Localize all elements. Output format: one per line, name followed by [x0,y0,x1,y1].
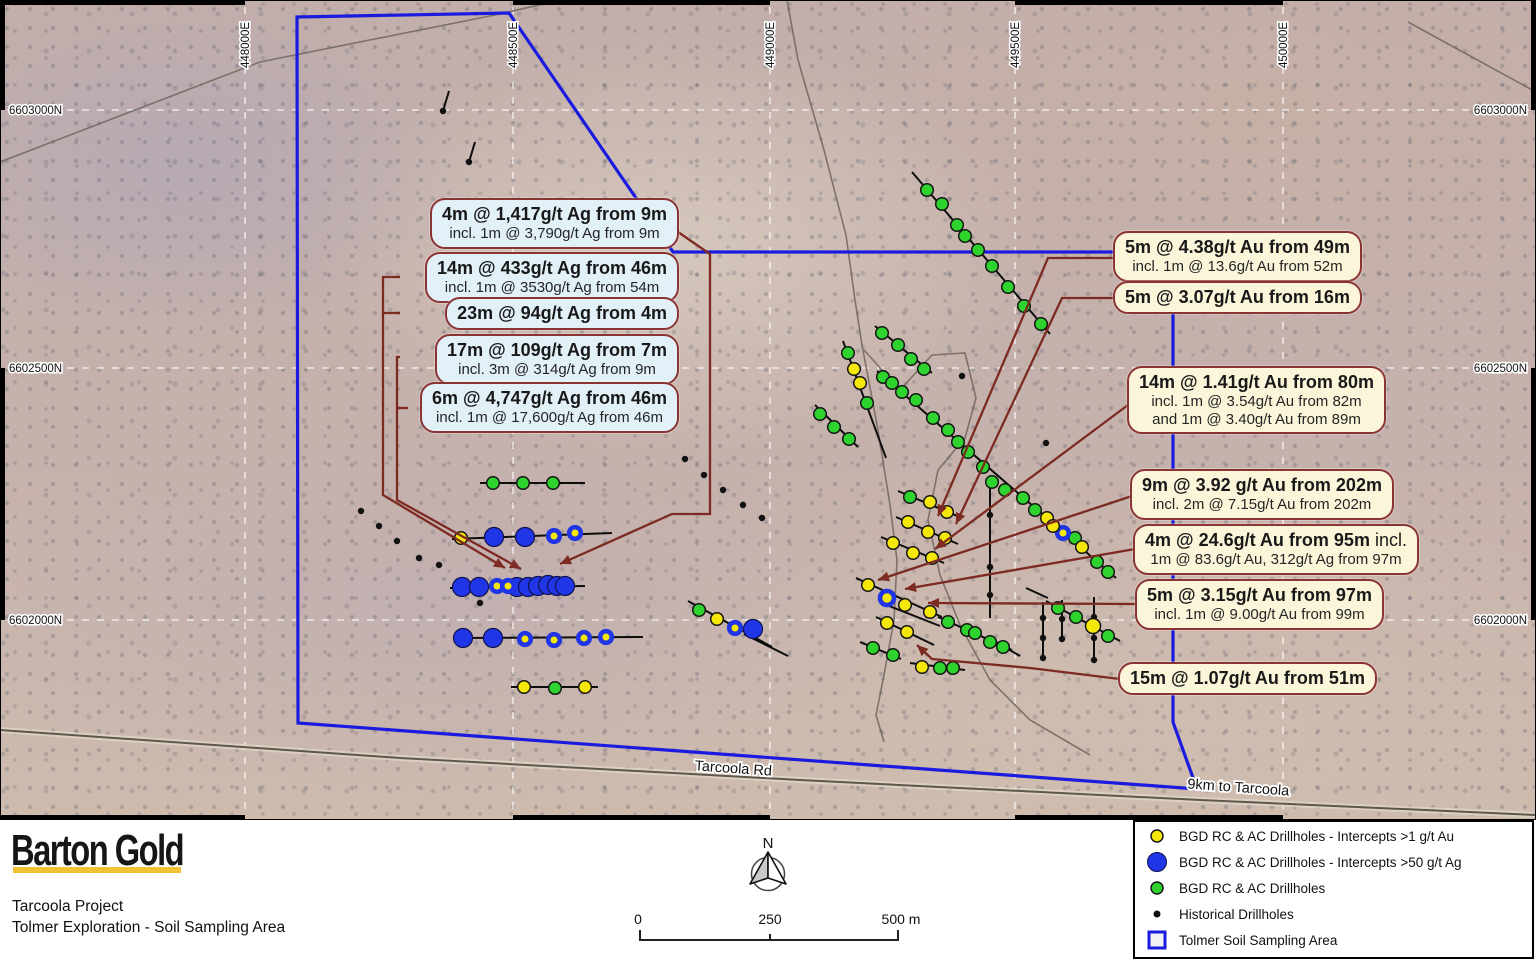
drillhole-bgd [905,353,918,366]
drillhole-historical [1091,657,1097,663]
track-line [0,0,560,162]
northing-label: 6603000N [1474,105,1527,117]
track-line [864,350,1090,755]
drillhole-bgd [1070,611,1083,624]
yellow-dot-icon [1144,824,1170,848]
drillhole-historical [358,508,364,514]
drillhole-historical [987,592,993,598]
drillhole-au-intercept [924,606,937,619]
drillhole-bgd [828,421,841,434]
drillhole-historical [701,472,707,478]
drillhole-historical [477,600,483,606]
legend-icon-cell [1135,850,1179,874]
drillhole-au-ag-intercept [548,634,560,646]
drillhole-bgd [1035,318,1048,331]
drillhole-ag-intercept [556,577,575,596]
callout-left-1: 4m @ 1,417g/t Ag from 9mincl. 1m @ 3,790… [430,198,679,249]
callout-right-1: 5m @ 4.38g/t Au from 49mincl. 1m @ 13.6g… [1113,231,1362,282]
north-arrow-and-scalebar: N0250500 m [0,820,1130,961]
drillhole-historical [1040,635,1046,641]
callout-title: 5m @ 4.38g/t Au from 49m [1125,236,1350,258]
drillhole-au-ag-intercept [502,580,514,592]
callout-title: 14m @ 1.41g/t Au from 80m [1139,371,1374,393]
callout-right-5: 4m @ 24.6g/t Au from 95m incl.1m @ 83.6g… [1133,524,1419,575]
legend-item-1: BGD RC & AC Drillholes - Intercepts >1 g… [1135,823,1532,849]
track-line [1408,22,1536,92]
northing-label: 6602500N [9,363,62,375]
drillhole-historical [466,159,472,165]
drillhole-bgd [693,604,706,617]
drillhole-historical [1043,440,1049,446]
callout-title: 4m @ 1,417g/t Ag from 9m [442,203,667,225]
drillhole-bgd [918,363,931,376]
legend-label: BGD RC & AC Drillholes - Intercepts >1 g… [1179,829,1454,844]
distance-label: 9km to Tarcoola [1187,776,1291,799]
callout-left-2: 14m @ 433g/t Ag from 46mincl. 1m @ 3530g… [425,252,679,303]
drillhole-historical [1091,635,1097,641]
drillhole-au-intercept [907,547,920,560]
callout-title: 5m @ 3.07g/t Au from 16m [1125,286,1350,308]
drillhole-au-intercept [862,579,875,592]
drillhole-historical [682,456,688,462]
green-dot-icon [1144,876,1170,900]
drillhole-bgd [997,641,1010,654]
callout-right-6: 5m @ 3.15g/t Au from 97mincl. 1m @ 9.00g… [1135,579,1384,630]
drillhole-historical [1040,615,1046,621]
callout-title: 17m @ 109g/t Ag from 7m [447,339,667,361]
callout-leader-arrowhead [878,572,890,581]
callout-left-3: 23m @ 94g/t Ag from 4m [445,297,679,330]
drillhole-bgd [1029,504,1042,517]
drillhole-bgd [959,230,972,243]
callout-title: 9m @ 3.92 g/t Au from 202m [1142,474,1382,496]
legend-icon-cell [1135,928,1179,952]
drillhole-ag-intercept [516,528,535,547]
callout-right-3: 14m @ 1.41g/t Au from 80mincl. 1m @ 3.54… [1127,366,1386,434]
legend: BGD RC & AC Drillholes - Intercepts >1 g… [1133,820,1534,959]
drillhole-bgd [867,642,880,655]
drillhole-au-ag-intercept [729,622,741,634]
callout-subline: incl. 1m @ 9.00g/t Au from 99m [1147,606,1372,624]
drillhole-bgd [921,184,934,197]
drillhole-bgd [942,424,955,437]
legend-label: Historical Drillholes [1179,907,1294,922]
drillhole-historical [1059,636,1065,642]
blue-square-icon [1144,928,1170,952]
legend-item-2: BGD RC & AC Drillholes - Intercepts >50 … [1135,849,1532,875]
drillhole-historical [987,564,993,570]
callout-title: 4m @ 24.6g/t Au from 95m incl. [1145,529,1407,551]
callout-right-7: 15m @ 1.07g/t Au from 51m [1118,662,1377,695]
drillhole-historical [720,487,726,493]
drillhole-bgd [1102,630,1115,643]
easting-label: 449500E [1010,22,1022,68]
drillhole-au-intercept [854,377,867,390]
drillhole-bgd [951,219,964,232]
callout-leader-line [935,405,1128,549]
drillhole-historical [740,502,746,508]
drillhole-bgd [547,477,560,490]
map-canvas: 448000E448500E449000E449500E450000E66030… [0,0,1536,820]
callout-subline: incl. 1m @ 3.54g/t Au from 82m [1139,393,1374,411]
callout-subline: incl. 1m @ 17,600g/t Ag from 46m [432,409,667,427]
drillhole-au-intercept [518,681,531,694]
drillhole-au-intercept [1086,619,1101,634]
northing-label: 6602000N [9,615,62,627]
drillhole-bgd [842,347,855,360]
callout-subline: incl. 2m @ 7.15g/t Au from 202m [1142,496,1382,514]
drillhole-bgd [986,260,999,273]
easting-label: 450000E [1278,22,1290,68]
drillhole-historical [759,515,765,521]
northing-label: 6603000N [9,105,62,117]
drillhole-bgd [861,397,874,410]
callout-right-2: 5m @ 3.07g/t Au from 16m [1113,281,1362,314]
drillhole-au-intercept [848,363,861,376]
drillhole-bgd [487,477,500,490]
legend-icon-cell [1135,902,1179,926]
drillhole-bgd [904,491,917,504]
drillhole-bgd [1002,281,1015,294]
drillhole-au-ag-intercept [880,591,894,605]
map-figure: 448000E448500E449000E449500E450000E66030… [0,0,1536,961]
drillhole-au-ag-intercept [569,527,581,539]
callout-subline: incl. 1m @ 3530g/t Ag from 54m [437,279,667,297]
callout-title: 14m @ 433g/t Ag from 46m [437,257,667,279]
scalebar-label: 0 [634,911,642,927]
drillhole-au-intercept [899,599,912,612]
drillhole-au-intercept [579,681,592,694]
drillhole-bgd [814,408,827,421]
drillhole-historical [1040,655,1046,661]
drillhole-bgd [896,386,909,399]
callout-leader-line [928,603,1137,604]
callout-leader-arrowhead [905,582,917,592]
drillhole-au-ag-intercept [519,633,531,645]
drillhole-bgd [942,616,955,629]
drillhole-au-intercept [887,537,900,550]
blue-dot-icon [1144,850,1170,874]
drillhole-bgd [843,433,856,446]
drillhole-historical [436,562,442,568]
easting-label: 449000E [765,22,777,68]
drillhole-historical [987,512,993,518]
drillhole-ag-intercept [484,629,503,648]
callout-left-5: 6m @ 4,747g/t Ag from 46mincl. 1m @ 17,6… [420,382,679,433]
drillhole-ag-intercept [453,578,472,597]
drillhole-bgd [887,649,900,662]
easting-label: 448000E [240,22,252,68]
drillhole-ag-intercept [485,528,504,547]
callout-subline: incl. 1m @ 3,790g/t Ag from 9m [442,225,667,243]
drillhole-bgd [1102,566,1115,579]
drillhole-ag-intercept [470,578,489,597]
drillhole-bgd [947,662,960,675]
northing-label: 6602500N [1474,363,1527,375]
scalebar [640,930,898,940]
drillhole-ag-intercept [744,620,763,639]
legend-item-5: Tolmer Soil Sampling Area [1135,927,1532,953]
drillhole-historical [416,555,422,561]
legend-label: Tolmer Soil Sampling Area [1179,933,1337,948]
callout-title: 23m @ 94g/t Ag from 4m [457,302,667,324]
drillhole-ag-intercept [454,629,473,648]
map-footer: Barton Gold Tarcoola Project Tolmer Expl… [0,820,1536,961]
drillhole-bgd [927,412,940,425]
drillhole-bgd [936,198,949,211]
drillhole-bgd [549,682,562,695]
drillhole-au-intercept [924,496,937,509]
legend-label: BGD RC & AC Drillholes [1179,881,1325,896]
legend-item-4: Historical Drillholes [1135,901,1532,927]
drillhole-au-intercept [1076,541,1089,554]
drillhole-au-intercept [711,613,724,626]
legend-icon-cell [1135,876,1179,900]
drillhole-au-intercept [922,526,935,539]
callout-leader-line [938,258,1115,516]
callout-title: 15m @ 1.07g/t Au from 51m [1130,667,1365,689]
drillhole-au-intercept [916,661,929,674]
drillhole-bgd [517,477,530,490]
drillhole-historical [376,523,382,529]
drillhole-historical [1059,616,1065,622]
drillhole-bgd [910,394,923,407]
north-label: N [763,835,774,852]
drillhole-historical [440,108,446,114]
callout-right-4: 9m @ 3.92 g/t Au from 202mincl. 2m @ 7.1… [1130,469,1394,520]
drillhole-bgd [986,476,999,489]
drillhole-au-intercept [881,617,894,630]
drillhole-au-intercept [901,626,914,639]
drillhole-bgd [969,627,982,640]
drillhole-bgd [934,662,947,675]
drillhole-bgd [972,244,985,257]
northing-label: 6602000N [1474,615,1527,627]
callout-title: 6m @ 4,747g/t Ag from 46m [432,387,667,409]
drillhole-au-ag-intercept [600,631,612,643]
callout-subline: incl. 1m @ 13.6g/t Au from 52m [1125,258,1350,276]
legend-item-3: BGD RC & AC Drillholes [1135,875,1532,901]
callout-subline: and 1m @ 3.40g/t Au from 89m [1139,411,1374,429]
callout-title: 5m @ 3.15g/t Au from 97m [1147,584,1372,606]
drillhole-bgd [984,636,997,649]
easting-label: 448500E [508,22,520,68]
drillhole-bgd [892,339,905,352]
drillhole-historical [394,538,400,544]
callout-subline: 1m @ 83.6g/t Au, 312g/t Ag from 97m [1145,551,1407,569]
drillhole-bgd [952,436,965,449]
legend-label: BGD RC & AC Drillholes - Intercepts >50 … [1179,855,1462,870]
drill-trace [1026,588,1048,598]
drillhole-bgd [1017,492,1030,505]
callout-subline: incl. 3m @ 314g/t Ag from 9m [447,361,667,379]
drillhole-au-ag-intercept [548,530,560,542]
scalebar-label: 250 [758,911,782,927]
drillhole-bgd [1091,556,1104,569]
drillhole-historical [959,373,965,379]
drillhole-bgd [886,377,899,390]
drillhole-au-ag-intercept [578,632,590,644]
black-dot-icon [1144,902,1170,926]
drillhole-bgd [876,327,889,340]
scalebar-label: 500 m [882,911,921,927]
legend-icon-cell [1135,824,1179,848]
callout-left-4: 17m @ 109g/t Ag from 7mincl. 3m @ 314g/t… [435,334,679,385]
callout-leader-line [956,298,1115,524]
drillhole-au-intercept [902,516,915,529]
